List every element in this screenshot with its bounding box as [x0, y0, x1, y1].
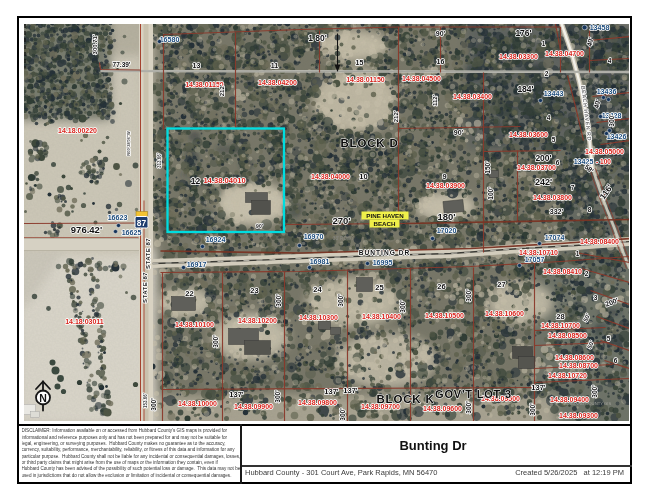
svg-text:17057: 17057 [524, 255, 544, 263]
svg-text:16917: 16917 [186, 260, 206, 268]
svg-text:11: 11 [270, 62, 278, 69]
svg-text:STATE 87: STATE 87 [145, 237, 151, 268]
svg-text:100': 100' [486, 186, 493, 199]
svg-text:N00°28'06"W: N00°28'06"W [125, 131, 130, 156]
svg-text:14.38.03800: 14.38.03800 [533, 193, 572, 200]
svg-text:14.38.08600: 14.38.08600 [555, 353, 594, 360]
svg-text:14.38.03300: 14.38.03300 [499, 52, 538, 59]
svg-text:90': 90' [435, 30, 445, 37]
svg-text:14.38.10100: 14.38.10100 [175, 320, 214, 327]
svg-text:14.38.10500: 14.38.10500 [425, 311, 464, 318]
svg-text:16970: 16970 [303, 232, 323, 240]
svg-text:14.38.04000: 14.38.04000 [311, 172, 350, 179]
svg-text:26: 26 [437, 282, 445, 291]
svg-text:150': 150' [483, 160, 490, 173]
svg-text:14.38.04500: 14.38.04500 [402, 74, 441, 81]
svg-text:300.71': 300.71' [91, 34, 97, 54]
svg-text:16924: 16924 [205, 235, 225, 243]
svg-text:300': 300' [211, 334, 218, 347]
svg-text:242': 242' [534, 176, 551, 186]
svg-text:14.38.09900: 14.38.09900 [234, 402, 273, 409]
svg-text:14.38.03700: 14.38.03700 [517, 163, 556, 170]
svg-text:14.38.08400: 14.38.08400 [580, 237, 619, 244]
svg-text:13: 13 [192, 62, 200, 69]
svg-text:13436: 13436 [596, 87, 616, 95]
svg-text:14.38.10700: 14.38.10700 [541, 321, 580, 328]
svg-text:300': 300' [336, 293, 343, 306]
svg-text:112': 112' [431, 94, 437, 106]
svg-text:87: 87 [136, 218, 146, 228]
svg-text:90': 90' [453, 129, 463, 136]
svg-text:14.38.08700: 14.38.08700 [559, 361, 598, 368]
svg-text:14.18.03011: 14.18.03011 [65, 317, 104, 324]
svg-text:16995: 16995 [372, 258, 392, 266]
svg-text:14.38.05000: 14.38.05000 [585, 147, 624, 154]
svg-text:13458: 13458 [589, 24, 609, 32]
svg-text:300': 300' [607, 113, 614, 126]
svg-text:BLOCK K: BLOCK K [376, 392, 434, 404]
svg-text:2: 2 [544, 69, 548, 76]
svg-text:BUNTING DR: BUNTING DR [358, 249, 409, 256]
svg-text:2: 2 [584, 269, 588, 276]
svg-text:300': 300' [273, 389, 280, 402]
svg-text:HUBBARD COUNTY GIS: HUBBARD COUNTY GIS [563, 400, 611, 405]
svg-text:14.38.09600: 14.38.09600 [423, 404, 462, 411]
svg-text:16625: 16625 [121, 228, 141, 236]
svg-text:8: 8 [587, 205, 591, 212]
svg-text:24: 24 [313, 285, 322, 294]
svg-text:4: 4 [546, 113, 550, 120]
svg-text:6: 6 [555, 158, 559, 165]
svg-text:16: 16 [436, 58, 444, 65]
svg-text:14.38.08410: 14.38.08410 [543, 267, 582, 274]
svg-text:BLOCK D: BLOCK D [340, 137, 398, 149]
svg-text:1 80': 1 80' [308, 32, 327, 42]
svg-text:4: 4 [607, 56, 611, 63]
svg-text:23: 23 [250, 286, 258, 295]
svg-text:212': 212' [392, 110, 398, 122]
svg-text:- 100: - 100 [596, 157, 611, 164]
svg-text:14.38.10400: 14.38.10400 [362, 312, 401, 319]
svg-text:14.38.04700: 14.38.04700 [545, 49, 584, 56]
svg-text:77.39': 77.39' [112, 60, 130, 67]
svg-text:90': 90' [256, 223, 263, 229]
svg-text:14.38.10000: 14.38.10000 [178, 399, 217, 406]
svg-text:16623: 16623 [107, 213, 127, 221]
svg-text:BEACH: BEACH [373, 220, 396, 227]
svg-text:200': 200' [535, 152, 551, 162]
svg-text:13443: 13443 [543, 89, 563, 97]
svg-text:300': 300' [464, 288, 471, 301]
svg-text:14.18.00220: 14.18.00220 [58, 126, 97, 133]
svg-text:14.38.04200: 14.38.04200 [258, 78, 297, 85]
svg-text:13426: 13426 [606, 132, 626, 140]
svg-text:12: 12 [190, 175, 200, 185]
svg-text:184': 184' [517, 83, 533, 93]
svg-text:137': 137' [343, 386, 358, 395]
svg-text:17020: 17020 [436, 226, 456, 234]
svg-text:14.38.10720: 14.38.10720 [548, 371, 587, 378]
svg-text:GOV'T LOT 3: GOV'T LOT 3 [435, 387, 512, 399]
svg-text:16981: 16981 [309, 257, 329, 265]
svg-text:313.66': 313.66' [156, 153, 161, 168]
svg-text:STATE 87: STATE 87 [142, 271, 148, 302]
svg-text:PINE HAVEN: PINE HAVEN [366, 212, 404, 219]
svg-text:300': 300' [398, 299, 405, 312]
svg-text:33' RDWY: 33' RDWY [332, 235, 353, 240]
svg-text:5: 5 [606, 334, 610, 341]
svg-text:176': 176' [515, 27, 531, 37]
svg-text:137': 137' [229, 390, 244, 399]
svg-text:14.38.10300: 14.38.10300 [299, 313, 338, 320]
svg-text:28: 28 [556, 312, 564, 321]
svg-text:14.38.03900: 14.38.03900 [426, 181, 465, 188]
svg-text:270': 270' [332, 214, 350, 225]
svg-text:17074: 17074 [544, 233, 564, 241]
svg-text:15: 15 [355, 59, 363, 66]
svg-text:212': 212' [218, 84, 224, 96]
svg-text:300': 300' [590, 384, 597, 397]
svg-text:14.38.10600: 14.38.10600 [485, 309, 524, 316]
svg-text:16580: 16580 [159, 35, 179, 43]
svg-text:5: 5 [551, 135, 555, 142]
svg-text:300': 300' [338, 407, 345, 420]
svg-text:7: 7 [570, 183, 574, 190]
svg-text:9: 9 [442, 172, 446, 181]
svg-text:3: 3 [593, 293, 597, 300]
svg-text:27: 27 [497, 280, 505, 289]
svg-text:14.38.01150: 14.38.01150 [346, 75, 385, 82]
svg-text:14.38.09300: 14.38.09300 [559, 411, 598, 418]
svg-text:10: 10 [359, 172, 367, 181]
svg-text:300': 300' [464, 400, 471, 413]
svg-text:300': 300' [528, 402, 535, 415]
svg-text:14.38.09800: 14.38.09800 [298, 398, 337, 405]
svg-text:1: 1 [575, 249, 579, 256]
svg-text:976.42': 976.42' [70, 223, 101, 234]
svg-text:180': 180' [437, 210, 455, 221]
svg-text:14.38.03600: 14.38.03600 [509, 130, 548, 137]
svg-text:14.38.03400: 14.38.03400 [453, 92, 492, 99]
svg-text:300': 300' [149, 397, 156, 410]
svg-text:1: 1 [541, 39, 545, 46]
svg-text:14.38.10200: 14.38.10200 [238, 316, 277, 323]
svg-text:14.38.08500: 14.38.08500 [548, 331, 587, 338]
svg-text:137': 137' [324, 387, 339, 396]
svg-text:25: 25 [375, 283, 383, 292]
svg-text:332': 332' [549, 208, 563, 215]
svg-text:6: 6 [613, 356, 617, 363]
svg-text:300': 300' [274, 293, 281, 306]
svg-text:N: N [39, 391, 47, 403]
svg-text:137': 137' [531, 383, 546, 392]
svg-text:22: 22 [185, 289, 193, 298]
svg-text:153.66': 153.66' [142, 393, 147, 408]
svg-text:14.38.04010: 14.38.04010 [203, 176, 245, 185]
svg-text:14.38.10710: 14.38.10710 [519, 248, 558, 255]
